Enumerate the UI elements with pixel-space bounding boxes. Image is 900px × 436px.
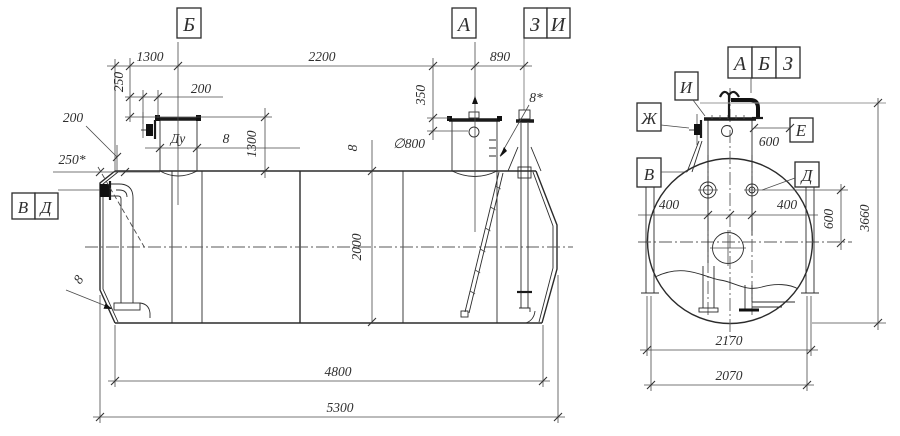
vent-gooseneck	[720, 92, 763, 118]
end-nozzles	[698, 182, 760, 198]
dim-neck-8: 8	[223, 131, 230, 146]
dim-2170: 2170	[716, 333, 743, 348]
flag-end-d-label: Д	[800, 166, 814, 185]
dim-2070: 2070	[716, 368, 743, 383]
dim-600-e: 600	[759, 134, 780, 149]
tank-shell	[85, 171, 573, 323]
dim-1300-top: 1300	[137, 49, 164, 64]
dim-2000: 2000	[349, 233, 364, 260]
manhole-1	[141, 42, 201, 205]
manhole-2	[447, 42, 502, 232]
dim-350: 350	[413, 85, 428, 107]
dim-du: Ду	[169, 131, 186, 146]
dim-5300: 5300	[327, 400, 354, 415]
side-view: Б А З И В Д 1300 2200 890 250	[12, 8, 573, 423]
dim-250-star: 250*	[59, 152, 86, 167]
flag-end-zh-label: Ж	[640, 109, 658, 128]
technical-drawing-sheet: Б А З И В Д 1300 2200 890 250	[0, 0, 900, 436]
flag-abz-z-label: З	[783, 53, 793, 75]
dim-2200: 2200	[309, 49, 336, 64]
end-manhole	[687, 92, 763, 263]
dim-200: 200	[191, 81, 212, 96]
nozzle-flange	[100, 184, 109, 197]
end-view: А Б З И Ж В Е Д 600	[637, 47, 886, 391]
dim-400-left: 400	[659, 197, 680, 212]
dim-4800: 4800	[325, 364, 352, 379]
flag-end-v-label: В	[644, 165, 655, 184]
dim-shell-8: 8	[345, 144, 360, 151]
dim-600-v: 600	[821, 209, 836, 230]
dim-8-star: 8*	[529, 90, 543, 105]
flag-b-label: Б	[182, 14, 195, 36]
side-section-flags: Б А З И В Д	[12, 8, 570, 219]
flag-end-e-label: Е	[795, 121, 807, 140]
dim-890: 890	[490, 49, 511, 64]
dim-250: 250	[111, 72, 126, 93]
dim-dia800: ∅800	[393, 136, 425, 151]
vent-and-gauge-pipe	[508, 38, 541, 312]
flag-d-label: Д	[39, 198, 53, 217]
dim-head-8: 8	[70, 272, 86, 286]
dim-3660: 3660	[857, 204, 872, 232]
up-arrow	[472, 96, 478, 104]
dim-400-right: 400	[777, 197, 798, 212]
flag-abz-b-label: Б	[757, 53, 770, 75]
end-dimensions: 600 400 400 600 3660 2170	[638, 98, 886, 391]
dim-leader-200: 200	[63, 110, 84, 125]
flag-a-label: А	[456, 14, 471, 36]
gusset	[687, 141, 702, 172]
dim-1300-v: 1300	[244, 130, 259, 157]
side-dimensions: 1300 2200 890 250 200 1300 Ду 8	[53, 49, 565, 423]
fill-nozzle-and-dip-pipe	[58, 167, 150, 318]
zh-fitting	[689, 114, 701, 145]
flag-v-label: В	[18, 198, 29, 217]
flag-end-i-label: И	[679, 78, 694, 97]
flag-z-label: З	[530, 14, 540, 36]
tank-drawing: Б А З И В Д 1300 2200 890 250	[0, 0, 900, 436]
flag-i-label: И	[550, 14, 567, 36]
flag-abz-a-label: А	[732, 53, 747, 75]
